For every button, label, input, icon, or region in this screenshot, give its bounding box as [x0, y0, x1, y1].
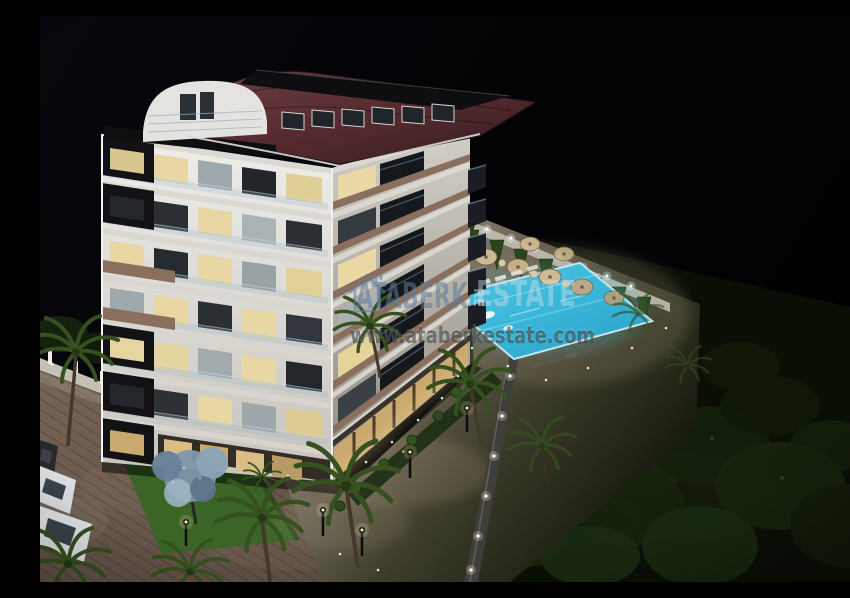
watermark-url: www.ataberkestate.com [350, 323, 595, 349]
watermark-brand-secondary: ESTATE [476, 274, 576, 315]
watermark-brand-primary: ATABERK [356, 276, 469, 317]
pool-watermark-text: RE [470, 288, 485, 307]
property-render-image: ATABERK ESTATE www.ataberkestate.com www… [40, 16, 850, 582]
night-scene: ATABERK ESTATE www.ataberkestate.com www… [40, 16, 850, 582]
